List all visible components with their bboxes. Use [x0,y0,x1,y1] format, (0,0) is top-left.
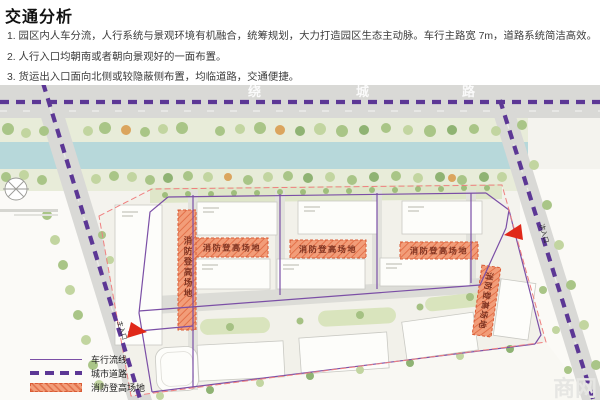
legend-item: 消防登高场地 [30,382,145,392]
page: 交通分析 1. 园区内人车分流，人行系统与景观环境有机融合，统筹规划，大力打造园… [0,0,600,400]
legend-label: 消防登高场地 [91,381,145,394]
building [196,259,270,289]
fire-staging-label: 消防登高场地 [410,246,468,256]
circulation-line-swatch-icon [30,359,82,360]
fire-area-swatch-icon [30,383,82,392]
fire-staging-label: 消防登高场地 [203,243,261,253]
site-plan-map: 消防登高场地 消防登高场地 消防登高场地 消防登高场地 [0,85,600,400]
page-title: 交通分析 [5,3,73,27]
building [380,258,470,286]
legend-item: 车行流线 [30,354,145,364]
legend-label: 车行流线 [91,353,127,366]
site-plan: 消防登高场地 消防登高场地 消防登高场地 消防登高场地 [0,85,600,400]
building [277,259,365,289]
analysis-point-3: 3. 货运出入口面向北侧或较隐蔽侧布置，均临道路，交通便捷。 [7,68,299,83]
building [197,341,285,381]
watermark: 商网 [553,376,597,400]
city-road-swatch-icon [30,371,82,376]
fire-staging-label-vertical: 消防登高场地 [179,221,196,313]
legend-label: 城市道路 [91,367,127,380]
building [197,202,277,235]
analysis-point-2: 2. 人行入口均朝南或者朝向景观好的一面布置。 [7,48,226,63]
road-name-char: 绕 [248,85,261,99]
building [402,201,482,234]
fire-staging-label: 消防登高场地 [299,244,357,254]
road-name-char: 路 [462,85,476,99]
legend: 车行流线 城市道路 消防登高场地 [30,354,145,392]
road-name-char: 城 [356,85,369,99]
building [298,201,377,234]
header: 交通分析 1. 园区内人车分流，人行系统与景观环境有机融合，统筹规划，大力打造园… [0,0,600,85]
analysis-point-1: 1. 园区内人车分流，人行系统与景观环境有机融合，统筹规划，大力打造园区生态主动… [7,27,597,42]
legend-item: 城市道路 [30,368,145,378]
